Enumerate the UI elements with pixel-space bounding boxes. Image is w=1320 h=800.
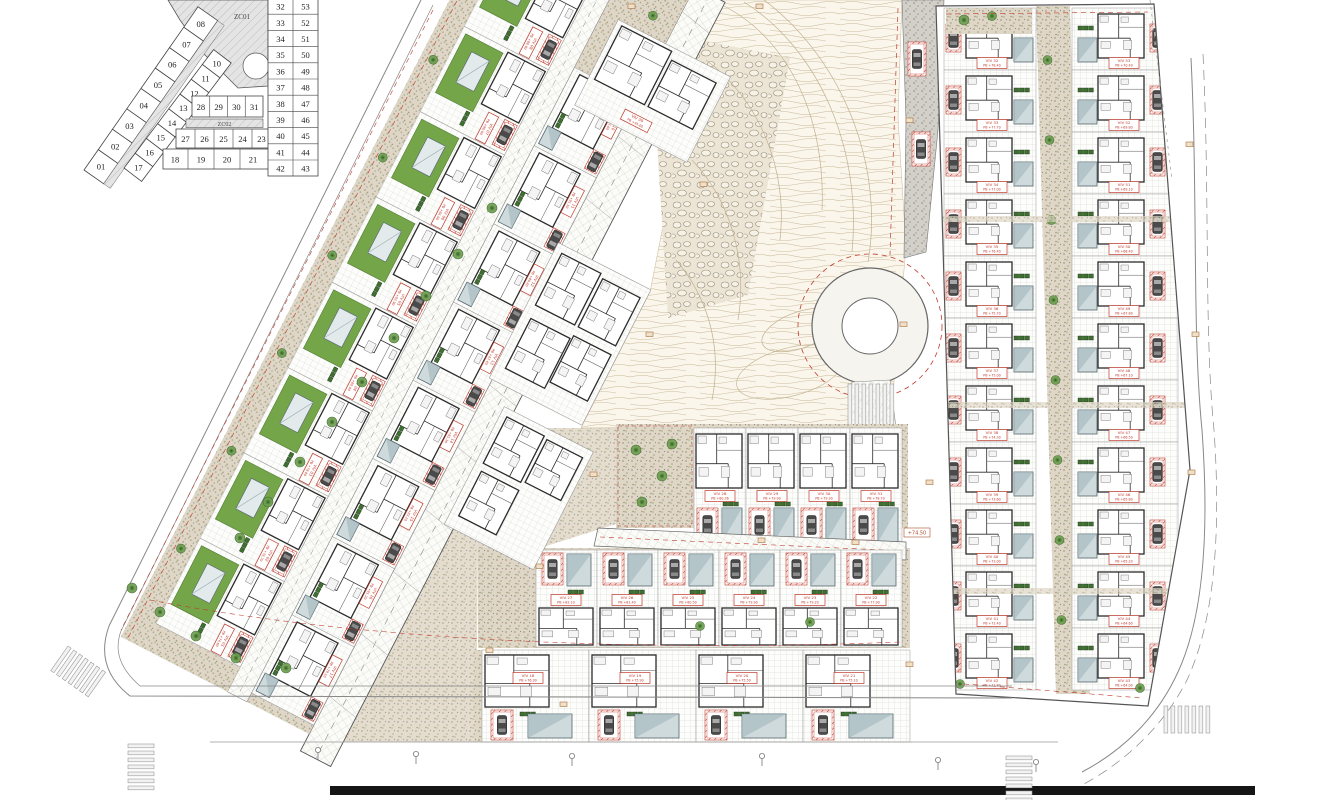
equipment-boxes: [1014, 274, 1029, 278]
villa-level: PB +77.90: [862, 601, 880, 605]
rect: [841, 712, 846, 716]
rect: [1100, 574, 1108, 580]
parking-stall: [946, 272, 961, 300]
rect: [520, 712, 525, 716]
rect: [1019, 646, 1024, 650]
plot-number: 04: [139, 101, 148, 111]
plot-number: 20: [223, 155, 232, 165]
rect: [723, 502, 728, 506]
plot-number: 35: [276, 50, 285, 60]
villa-unit: VIV 24PB +79.90: [719, 550, 780, 647]
rect: [1078, 274, 1083, 278]
rect: [704, 519, 711, 523]
plot-number: 19: [197, 155, 206, 165]
rect: [1121, 575, 1128, 580]
villa-unit: VIV 50PB +68.40: [1072, 194, 1178, 256]
tree-icon: [281, 663, 291, 673]
rect: [968, 574, 976, 580]
plot-number: 39: [276, 115, 285, 125]
equipment-boxes: [1014, 646, 1029, 650]
villa-unit: VIV 36PB +75.70: [944, 256, 1036, 318]
rect: [876, 384, 880, 426]
rect: [762, 590, 767, 594]
circle: [243, 53, 269, 79]
villa-level: PB +79.20: [801, 601, 819, 605]
rect: [1089, 460, 1094, 464]
villa-floor-plan: [800, 434, 846, 488]
villa-label: VIV 34PB +77.00: [977, 182, 1007, 193]
villa-level: PB +81.40: [618, 601, 636, 605]
rect: [664, 631, 675, 637]
villa-level: PB +82.10: [557, 601, 575, 605]
tree-icon: [231, 653, 241, 663]
villa-label: VIV 49PB +67.80: [1109, 306, 1139, 317]
pool: [1014, 472, 1033, 496]
circle: [991, 15, 993, 17]
circle: [809, 621, 811, 623]
parking-stall: [786, 553, 807, 585]
villa-level: PB +77.70: [983, 126, 1001, 130]
equipment-boxes: [1078, 212, 1093, 216]
rect: [1192, 706, 1196, 733]
parking-stall: [847, 553, 868, 585]
parking-stall: [946, 334, 961, 362]
tree-icon: [263, 497, 273, 507]
villa-id: VIV 31: [870, 491, 883, 496]
car-icon: [912, 50, 921, 69]
equipment-boxes: [1014, 150, 1029, 154]
villa-unit: VIV 37PB +75.00: [944, 318, 1036, 380]
pool: [1014, 286, 1033, 310]
rect: [1100, 512, 1108, 518]
rect: [1123, 474, 1131, 483]
car-icon: [670, 560, 679, 579]
rect: [732, 563, 739, 567]
rect: [1101, 165, 1110, 172]
villa-unit: VIV 26PB +81.40: [597, 550, 658, 647]
equipment-boxes: [812, 590, 827, 594]
rect: [854, 563, 861, 567]
tree-icon: [657, 471, 667, 481]
car-icon: [807, 516, 816, 535]
rect: [968, 326, 976, 332]
circle: [759, 753, 764, 758]
parking-stall: [491, 710, 513, 740]
rect: [1154, 104, 1161, 108]
rect: [918, 143, 925, 147]
villa-floor-plan: [966, 634, 1012, 678]
villa-id: VIV 37: [986, 368, 999, 373]
villa-unit: VIV 46PB +65.80: [1072, 442, 1178, 504]
villa-id: VIV 51: [1118, 182, 1131, 187]
pool: [1014, 348, 1033, 372]
rect: [1100, 326, 1108, 332]
pool: [628, 554, 652, 586]
equipment-boxes: [1078, 88, 1093, 92]
rect: [1178, 706, 1182, 733]
rect: [1078, 398, 1083, 402]
rect: [854, 573, 861, 577]
circle: [299, 461, 301, 463]
villa-level: PB +73.00: [983, 560, 1001, 564]
rect: [1078, 584, 1083, 588]
rect: [1154, 538, 1161, 542]
rect: [1121, 141, 1128, 146]
tree-icon: [327, 417, 337, 427]
car-icon: [949, 277, 958, 296]
rect: [734, 502, 739, 506]
villa-id: VIV 47: [1118, 430, 1131, 435]
rect: [989, 265, 996, 270]
rect: [1100, 636, 1108, 642]
rect: [878, 590, 883, 594]
car-icon: [1153, 525, 1162, 544]
rect: [569, 630, 579, 637]
parking-stall: [1150, 520, 1165, 548]
rect: [541, 610, 551, 615]
plot-number: 44: [301, 147, 310, 157]
parking-stall: [908, 42, 926, 76]
rect: [848, 384, 852, 426]
parking-stall: [603, 553, 624, 585]
rect: [950, 280, 957, 284]
circle: [569, 753, 574, 758]
rect: [969, 599, 978, 606]
rect: [1083, 584, 1088, 588]
villa-id: VIV 22: [865, 595, 878, 600]
rect: [847, 631, 858, 637]
rect: [627, 611, 636, 615]
villa-id: VIV 50: [1118, 244, 1131, 249]
rect: [1089, 88, 1094, 92]
villa-unit: VIV 38PB +74.30: [944, 380, 1036, 442]
rect: [914, 53, 921, 57]
rect: [1078, 460, 1083, 464]
car-icon: [548, 560, 557, 579]
rect: [1101, 599, 1110, 606]
villa-id: VIV 41: [986, 616, 999, 621]
rect: [1089, 522, 1094, 526]
parking-stall: [946, 86, 961, 114]
rect: [595, 687, 608, 695]
rect: [991, 598, 999, 607]
rect: [1014, 336, 1019, 340]
pool: [1078, 162, 1097, 186]
circle: [1057, 459, 1059, 461]
plot-number: 17: [134, 162, 143, 172]
rect: [1078, 646, 1083, 650]
rect: [950, 414, 957, 418]
rect: [969, 351, 978, 358]
pool: [1078, 348, 1097, 372]
circle: [1049, 139, 1051, 141]
rect: [690, 590, 695, 594]
rect: [855, 384, 859, 426]
rect: [128, 758, 154, 762]
plot-number: 06: [168, 60, 177, 70]
rect: [832, 502, 837, 506]
rect: [756, 590, 761, 594]
rect: [838, 502, 843, 506]
car-icon: [1153, 277, 1162, 296]
parking-stall: [812, 710, 834, 740]
villa-id: VIV 44: [1118, 616, 1131, 621]
circle: [361, 381, 363, 383]
car-icon: [949, 91, 958, 110]
rect: [1154, 166, 1161, 170]
equipment-boxes: [690, 590, 705, 594]
villa-unit: VIV 22PB +77.90: [841, 550, 902, 647]
villa-unit: VIV 31PB +78.70: [850, 428, 902, 546]
villa-level: PB +65.20: [1115, 560, 1133, 564]
villa-unit: VIV 44PB +64.60: [1072, 566, 1178, 628]
villa-label: VIV 19PB +75.90: [620, 673, 650, 684]
rect: [1154, 228, 1161, 232]
rect: [968, 140, 976, 146]
rect: [517, 658, 527, 664]
plot-number: 41: [276, 147, 285, 157]
equipment-boxes: [1014, 88, 1029, 92]
pool: [528, 714, 572, 738]
rect: [808, 657, 820, 664]
plot-number: 47: [301, 99, 310, 109]
plot-number: 40: [276, 131, 285, 141]
rect: [989, 389, 996, 394]
rect: [771, 437, 778, 443]
dimension-tag: [700, 182, 707, 187]
villa-floor-plan: [966, 76, 1012, 120]
villa-unit: VIV 35PB +76.40: [944, 194, 1036, 256]
parking-stall: [705, 710, 727, 740]
villa-level: PB +80.50: [679, 601, 697, 605]
villa-floor-plan: [748, 434, 794, 488]
pool: [1014, 224, 1033, 248]
rect: [989, 203, 996, 208]
rect: [725, 631, 736, 637]
rect: [624, 658, 634, 664]
equipment-boxes: [827, 502, 842, 506]
tree-icon: [155, 607, 165, 617]
villa-label: VIV 46PB +65.80: [1109, 492, 1139, 503]
pool: [1014, 162, 1033, 186]
rect: [1083, 646, 1088, 650]
equipment-boxes: [1078, 274, 1093, 278]
rect: [820, 719, 827, 723]
villa-id: VIV 26: [621, 595, 634, 600]
equipment-boxes: [1078, 522, 1093, 526]
rect: [862, 384, 866, 426]
circle: [159, 611, 161, 613]
rect: [969, 41, 978, 48]
tree-icon: [421, 291, 431, 301]
villa-unit: VIV 23PB +79.20: [780, 550, 841, 647]
villa-label: VIV 29PB +79.90: [757, 491, 787, 502]
villa-unit: VIV 19PB +75.90: [589, 650, 696, 742]
villa-level: PB +78.40: [983, 64, 1001, 68]
villa-floor-plan: [600, 608, 654, 645]
rect: [1101, 537, 1110, 544]
pool: [742, 714, 786, 738]
car-icon: [609, 560, 618, 579]
rect: [640, 590, 645, 594]
equipment-boxes: [1014, 584, 1029, 588]
villa-level: PB +75.10: [840, 679, 858, 683]
tree-icon: [127, 583, 137, 593]
rect: [991, 164, 999, 173]
rect: [810, 611, 819, 615]
rect: [1154, 342, 1161, 346]
rect: [1025, 522, 1030, 526]
rect: [128, 772, 154, 776]
villa-id: VIV 28: [714, 491, 727, 496]
dimension-tag: [646, 332, 653, 337]
villa-id: VIV 33: [986, 120, 999, 125]
rect: [1101, 289, 1110, 296]
rect: [1101, 227, 1110, 234]
rect: [1123, 412, 1131, 421]
villa-unit: VIV 40PB +73.00: [944, 504, 1036, 566]
villa-floor-plan: [966, 324, 1012, 368]
rect: [1006, 784, 1032, 788]
tree-icon: [631, 445, 641, 455]
rect: [1083, 274, 1088, 278]
equipment-boxes: [873, 590, 888, 594]
villa-level: PB +79.90: [740, 601, 758, 605]
rect: [823, 590, 828, 594]
villa-floor-plan: [1098, 14, 1144, 58]
rect: [950, 166, 957, 170]
crosswalk: [848, 384, 894, 426]
parking-stall: [853, 508, 874, 542]
rect: [1123, 536, 1131, 545]
villa-level: PB +75.00: [983, 374, 1001, 378]
car-icon: [604, 716, 613, 735]
car-icon: [497, 716, 506, 735]
villa-label: VIV 51PB +69.10: [1109, 182, 1139, 193]
villa-unit: VIV 30PB +79.30: [798, 428, 850, 546]
pool: [1078, 596, 1097, 620]
circle: [1061, 619, 1063, 621]
rect: [1025, 584, 1030, 588]
villa-unit: VIV 28PB +80.36: [694, 428, 746, 546]
villa-label: VIV 41PB +72.40: [977, 616, 1007, 627]
equipment-boxes: [1078, 460, 1093, 464]
villa-label: VIV 27PB +82.10: [551, 595, 581, 606]
villa-level: PB +76.40: [983, 250, 1001, 254]
rect: [721, 466, 729, 477]
circle: [413, 751, 418, 756]
villa-level: PB +64.60: [1115, 622, 1133, 626]
rect: [969, 227, 978, 234]
villa-id: VIV 25: [682, 595, 695, 600]
equipment-boxes: [1014, 460, 1029, 464]
rect: [874, 630, 884, 637]
rect: [1154, 290, 1161, 294]
villa-unit: VIV 51PB +69.10: [1072, 132, 1178, 194]
rect: [860, 529, 867, 533]
rect: [751, 467, 760, 476]
villa-unit: VIV 49PB +67.80: [1072, 256, 1178, 318]
plot-number: 30: [232, 102, 241, 112]
rect: [499, 719, 506, 723]
villa-label: VIV 52PB +69.80: [1109, 120, 1139, 131]
rect: [573, 590, 578, 594]
rect: [1121, 17, 1128, 22]
rect: [877, 466, 885, 477]
rect: [968, 264, 976, 270]
villa-unit: VIV 18PB +76.30: [482, 650, 589, 742]
villa-level: PB +80.36: [711, 497, 729, 501]
tree-icon: [1051, 376, 1060, 385]
circle: [267, 501, 269, 503]
rect: [630, 630, 640, 637]
rect: [1100, 450, 1108, 456]
rect: [1121, 389, 1128, 394]
rect: [1154, 528, 1161, 532]
circle: [239, 537, 241, 539]
rect: [825, 466, 833, 477]
pool: [567, 554, 591, 586]
rect: [808, 519, 815, 523]
rect: [542, 631, 553, 637]
rect: [1019, 522, 1024, 526]
villa-id: VIV 42: [986, 678, 999, 683]
rect: [879, 502, 884, 506]
rect: [499, 729, 506, 733]
villa-id: VIV 19: [629, 673, 642, 678]
rect: [773, 466, 781, 477]
circle: [963, 19, 965, 21]
zc01-label: ZC01: [234, 13, 250, 21]
rect: [1089, 398, 1094, 402]
plot-number: 52: [301, 18, 310, 28]
villa-floor-plan: [1098, 324, 1144, 368]
dimension-tag: [906, 118, 913, 123]
villa-id: VIV 40: [986, 554, 999, 559]
plot-number: 45: [301, 131, 310, 141]
parking-stall: [912, 132, 930, 166]
equipment-boxes: [775, 502, 790, 506]
villa-label: VIV 30PB +79.30: [809, 491, 839, 502]
circle: [661, 475, 663, 477]
rect: [568, 590, 573, 594]
rect: [1164, 706, 1168, 733]
rect: [1121, 79, 1128, 84]
pool: [1014, 534, 1033, 558]
rect: [1154, 466, 1161, 470]
rect: [950, 156, 957, 160]
rect: [1078, 88, 1083, 92]
parking-stall: [1150, 396, 1165, 424]
circle: [1033, 759, 1038, 764]
villa-unit: VIV 20PB +75.50: [696, 650, 803, 742]
rect: [813, 630, 823, 637]
equipment-boxes: [1078, 26, 1093, 30]
car-icon: [703, 516, 712, 535]
pool: [811, 554, 835, 586]
rect: [1006, 770, 1032, 774]
rect: [873, 590, 878, 594]
equipment-boxes: [629, 590, 644, 594]
parking-stall: [1150, 148, 1165, 176]
rect: [1171, 706, 1175, 733]
pool: [1078, 472, 1097, 496]
rect: [1123, 226, 1131, 235]
rect: [890, 502, 895, 506]
circle: [959, 683, 961, 685]
villa-label: VIV 21PB +75.10: [834, 673, 864, 684]
rect: [1019, 88, 1024, 92]
